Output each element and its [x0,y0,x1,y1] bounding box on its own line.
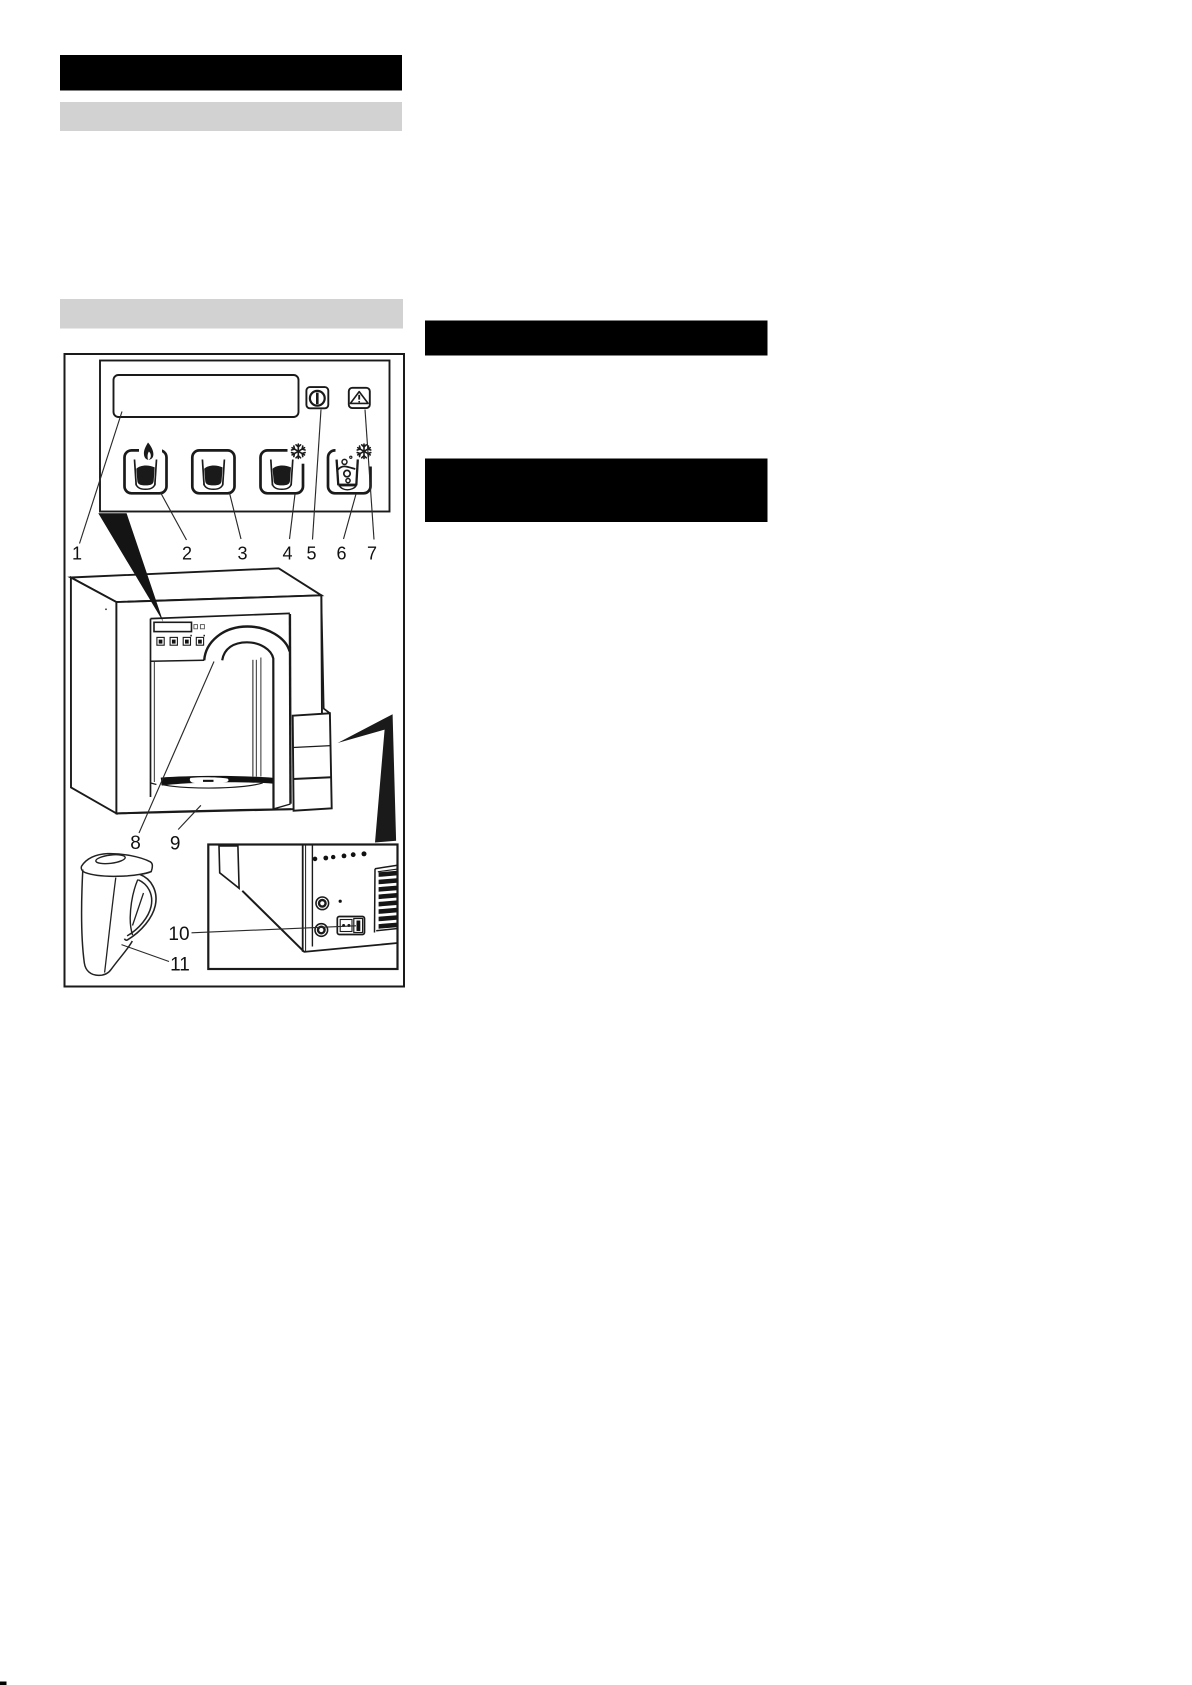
svg-text:8: 8 [130,833,141,854]
svg-text:6: 6 [336,544,346,564]
svg-text:5: 5 [306,544,316,564]
svg-text:7: 7 [367,544,377,564]
svg-text:10: 10 [168,924,189,945]
svg-text:3: 3 [237,544,247,564]
svg-text:1: 1 [72,544,82,564]
svg-text:11: 11 [170,955,190,976]
svg-text:2: 2 [182,544,192,564]
svg-text:9: 9 [170,834,181,855]
svg-text:4: 4 [282,544,292,564]
